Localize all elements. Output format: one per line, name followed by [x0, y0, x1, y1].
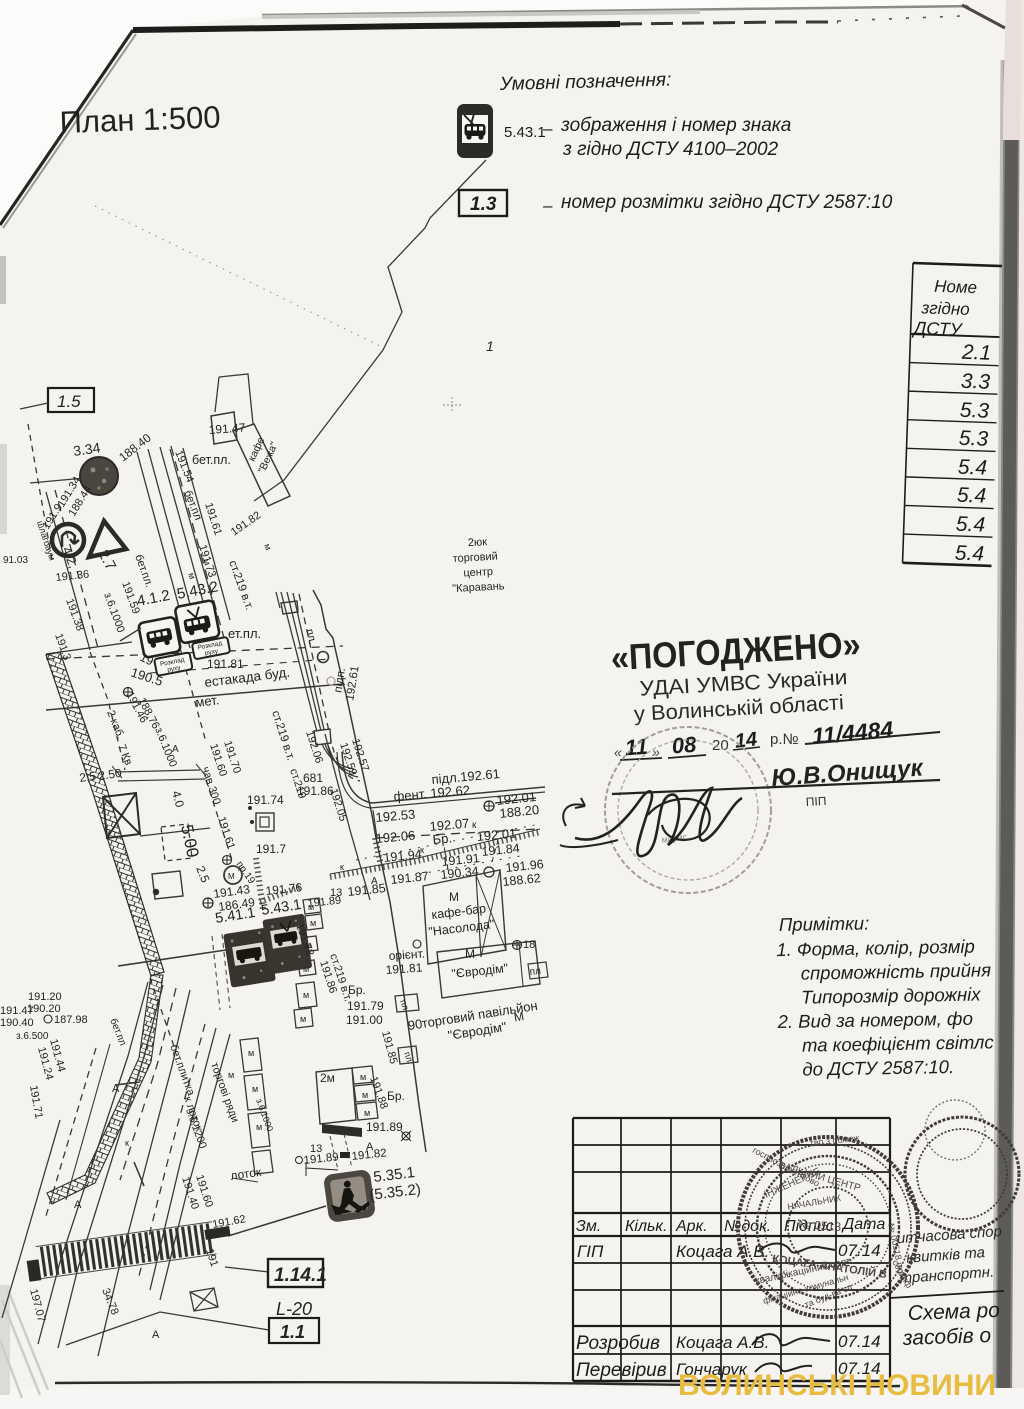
svg-text:–: – — [542, 119, 553, 138]
svg-text:з гідно ДСТУ 4100–2002: з гідно ДСТУ 4100–2002 — [562, 139, 779, 160]
svg-text:бет.пл.: бет.пл. — [192, 453, 231, 467]
svg-text:М: М — [465, 947, 475, 961]
svg-text:18: 18 — [523, 939, 535, 951]
svg-text:А: А — [152, 1329, 160, 1341]
svg-text:Коцага А.В.: Коцага А.В. — [676, 1242, 769, 1261]
svg-text:м: м — [364, 1108, 370, 1118]
svg-text:та коефіцієнт світлс: та коефіцієнт світлс — [802, 1031, 995, 1055]
svg-text:5.3: 5.3 — [959, 399, 989, 423]
svg-text:5.4: 5.4 — [957, 456, 987, 480]
svg-text:План 1:500: План 1:500 — [59, 99, 221, 140]
svg-text:к: к — [420, 845, 424, 855]
svg-text:191.79: 191.79 — [347, 999, 384, 1013]
svg-text:М: М — [228, 872, 235, 881]
svg-text:р.№: р.№ — [770, 731, 799, 748]
svg-text:Примітки:: Примітки: — [779, 912, 870, 935]
svg-text:А: А — [74, 1199, 82, 1211]
svg-text:пл: пл — [529, 966, 542, 978]
svg-text:згідно: згідно — [920, 298, 970, 319]
svg-text:5.3: 5.3 — [959, 427, 989, 451]
svg-text:20: 20 — [712, 737, 729, 754]
svg-text:Коцага А.В.: Коцага А.В. — [676, 1333, 769, 1352]
svg-text:681: 681 — [303, 771, 323, 785]
svg-text:Номе: Номе — [934, 277, 977, 297]
svg-text:Арк.: Арк. — [675, 1218, 708, 1235]
svg-text:зображення і номер знака: зображення і номер знака — [560, 115, 791, 136]
svg-text:Бр.: Бр. — [387, 1089, 405, 1103]
svg-text:А: А — [172, 744, 179, 755]
svg-text:засобів о: засобів о — [901, 1324, 991, 1350]
svg-text:191.81: 191.81 — [385, 960, 423, 977]
svg-text:1.1: 1.1 — [280, 1322, 305, 1342]
svg-text:А: А — [371, 876, 378, 887]
svg-text:М: М — [449, 890, 459, 904]
svg-text:191.74: 191.74 — [247, 793, 284, 807]
svg-text:м: м — [252, 1084, 258, 1094]
svg-text:А: А — [112, 1083, 120, 1095]
svg-text:торговий: торговий — [452, 551, 498, 565]
svg-text:номер розмітки згідно ДСТУ 258: номер розмітки згідно ДСТУ 2587:10 — [561, 192, 893, 213]
svg-text:Схема ро: Схема ро — [907, 1299, 1000, 1325]
svg-text:мет.: мет. — [195, 692, 221, 710]
svg-text:м: м — [305, 940, 311, 950]
svg-text:1.3: 1.3 — [470, 194, 497, 215]
svg-text:191.7: 191.7 — [256, 842, 286, 856]
svg-text:191.86: 191.86 — [297, 784, 334, 798]
svg-text:5.43.1: 5.43.1 — [504, 124, 546, 141]
svg-text:2м: 2м — [320, 1071, 335, 1085]
svg-text:ГІП: ГІП — [577, 1242, 604, 1261]
svg-text:Кільк.: Кільк. — [625, 1218, 667, 1235]
svg-text:187.98: 187.98 — [54, 1014, 88, 1026]
svg-text:3.3: 3.3 — [961, 370, 991, 394]
svg-text:м: м — [310, 918, 316, 928]
svg-text:5.4: 5.4 — [956, 513, 986, 537]
svg-text:L-20: L-20 — [276, 1299, 312, 1319]
svg-text:к: к — [125, 1138, 129, 1148]
svg-text:1: 1 — [486, 338, 494, 354]
svg-text:м: м — [308, 902, 314, 912]
svg-text:191.00: 191.00 — [346, 1013, 383, 1027]
svg-text:Типорозмір дорожніх: Типорозмір дорожніх — [801, 983, 981, 1007]
svg-text:Бр.: Бр. — [432, 830, 453, 847]
svg-text:191.89: 191.89 — [366, 1120, 403, 1134]
svg-text:Дата: Дата — [841, 1216, 885, 1233]
svg-text:191.20: 191.20 — [28, 991, 62, 1003]
svg-text:м: м — [303, 964, 309, 974]
svg-text:5.4: 5.4 — [957, 484, 987, 508]
svg-text:07.14: 07.14 — [838, 1332, 881, 1351]
svg-text:2юк: 2юк — [468, 536, 488, 549]
svg-text:м: м — [248, 1048, 254, 1058]
svg-text:ет.пл.: ет.пл. — [228, 626, 261, 641]
svg-text:1. Форма, колір, розмір: 1. Форма, колір, розмір — [776, 936, 975, 960]
svg-text:м: м — [300, 1014, 306, 1024]
svg-text:спроможність прийня: спроможність прийня — [801, 959, 992, 983]
svg-text:ПІП: ПІП — [805, 794, 826, 809]
svg-text:з.6.500: з.6.500 — [16, 1031, 49, 1042]
svg-text:«: « — [614, 744, 622, 760]
svg-text:Зм.: Зм. — [576, 1218, 601, 1235]
svg-text:1.5: 1.5 — [57, 392, 81, 411]
svg-text:1.14.1: 1.14.1 — [274, 1265, 327, 1286]
svg-text:к: к — [340, 862, 344, 872]
svg-text:№док.: №док. — [724, 1218, 771, 1235]
svg-text:91.03: 91.03 — [3, 555, 28, 566]
svg-text:Перевірив: Перевірив — [576, 1360, 667, 1381]
svg-text:190.40: 190.40 — [0, 1017, 34, 1029]
svg-text:08: 08 — [671, 732, 698, 759]
svg-text:м: м — [362, 1090, 368, 1100]
svg-text:5.4: 5.4 — [954, 542, 984, 566]
svg-text:м: м — [228, 1070, 234, 1080]
svg-text:2.1: 2.1 — [961, 341, 992, 365]
svg-text:Розробив: Розробив — [576, 1333, 660, 1354]
svg-text:2. Вид за номером, фо: 2. Вид за номером, фо — [776, 1008, 973, 1032]
svg-text:до ДСТУ 2587:10.: до ДСТУ 2587:10. — [802, 1056, 954, 1080]
svg-text:м: м — [303, 990, 309, 1000]
svg-text:191.47: 191.47 — [208, 420, 246, 437]
svg-text:191.81: 191.81 — [207, 657, 244, 671]
svg-text:11: 11 — [624, 734, 649, 761]
svg-text:м: м — [256, 1122, 262, 1132]
svg-text:ДСТУ: ДСТУ — [911, 318, 963, 340]
svg-text:м: м — [360, 1072, 366, 1082]
svg-text:Бр.: Бр. — [348, 983, 366, 997]
svg-text:191.47: 191.47 — [0, 1005, 34, 1017]
svg-text:центр: центр — [463, 566, 493, 580]
svg-text:–: – — [542, 196, 553, 215]
svg-text:ВОЛИНСЬКІ НОВИНИ: ВОЛИНСЬКІ НОВИНИ — [678, 1369, 996, 1402]
svg-text:2,5: 2,5 — [78, 769, 97, 785]
